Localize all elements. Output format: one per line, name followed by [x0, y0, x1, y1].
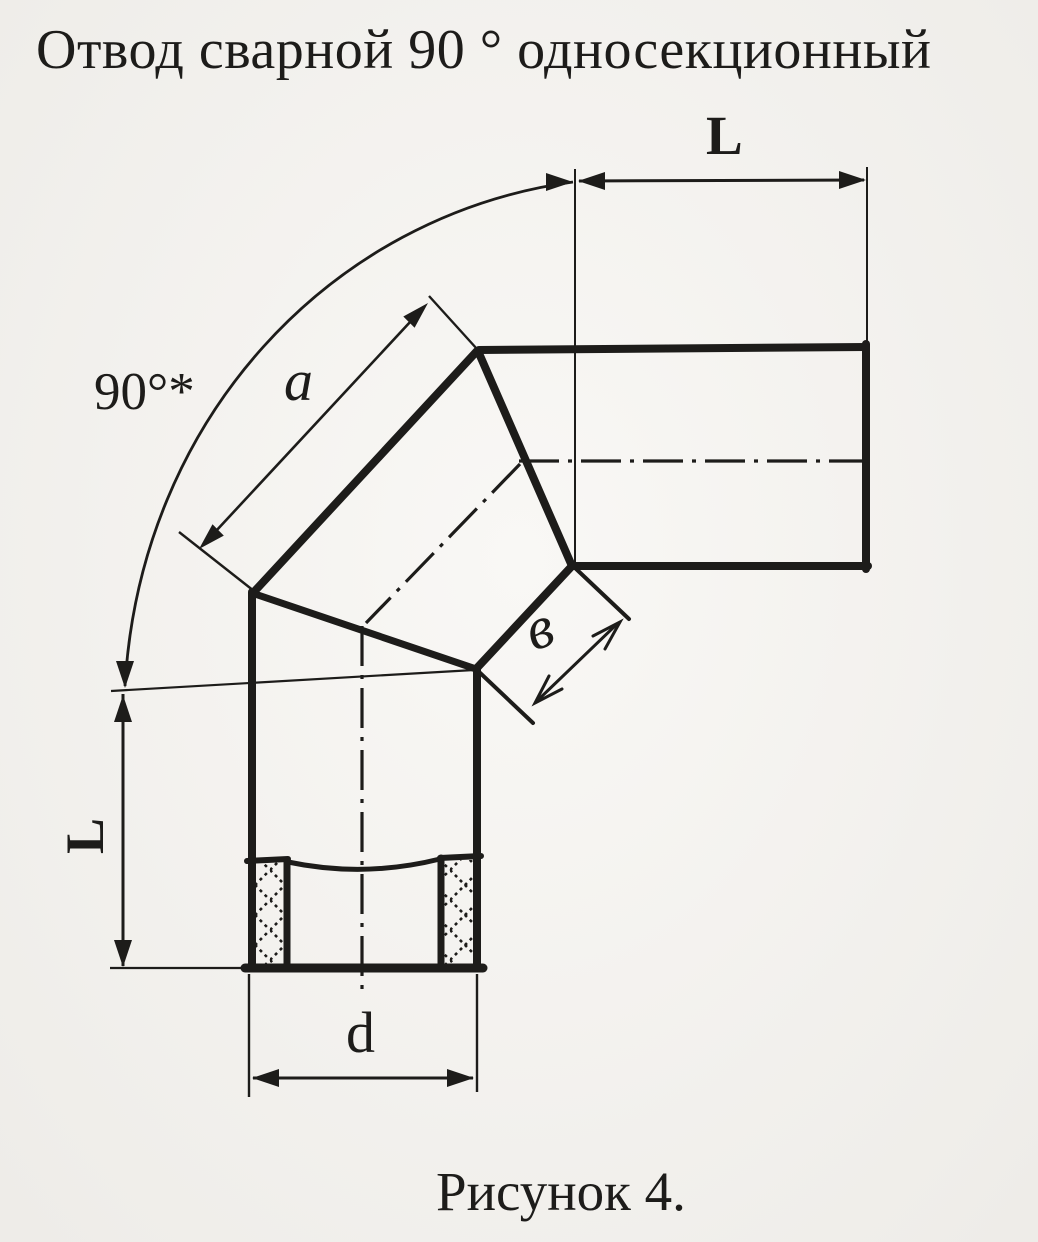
angle-arc-dimension	[116, 173, 573, 688]
packing-hatch-right	[444, 860, 474, 966]
figure-caption: Рисунок 4.	[436, 1164, 686, 1219]
dim-arrow-south	[114, 940, 132, 967]
label-diameter-d: d	[346, 1004, 375, 1062]
dim-arrow-north	[114, 695, 132, 722]
dim-arrow-west	[252, 1069, 279, 1087]
dim-arrow-east	[447, 1069, 474, 1087]
label-angle-90: 90°*	[94, 366, 195, 419]
elbow-technical-drawing	[0, 0, 1038, 1242]
figure-page: Отвод сварной 90 ° односекционный L 90°*…	[0, 0, 1038, 1242]
socket-detail	[247, 856, 481, 966]
label-length-left: L	[58, 806, 118, 866]
arc-arrow-south	[116, 661, 134, 688]
horizontal-pipe-outline	[479, 344, 868, 569]
dim-arrow-west	[578, 172, 605, 190]
drawing-title: Отвод сварной 90 ° односекционный	[36, 22, 931, 78]
dimension-L-left	[110, 670, 474, 968]
packing-hatch-left	[254, 862, 284, 966]
dimension-L-top	[575, 167, 867, 565]
label-side-a: a	[284, 352, 313, 410]
center-line-diagonal	[366, 464, 520, 623]
arc-arrow-east	[546, 173, 573, 191]
label-length-top: L	[706, 108, 743, 163]
dim-arrow-east	[839, 171, 866, 189]
dimension-a	[179, 296, 477, 591]
